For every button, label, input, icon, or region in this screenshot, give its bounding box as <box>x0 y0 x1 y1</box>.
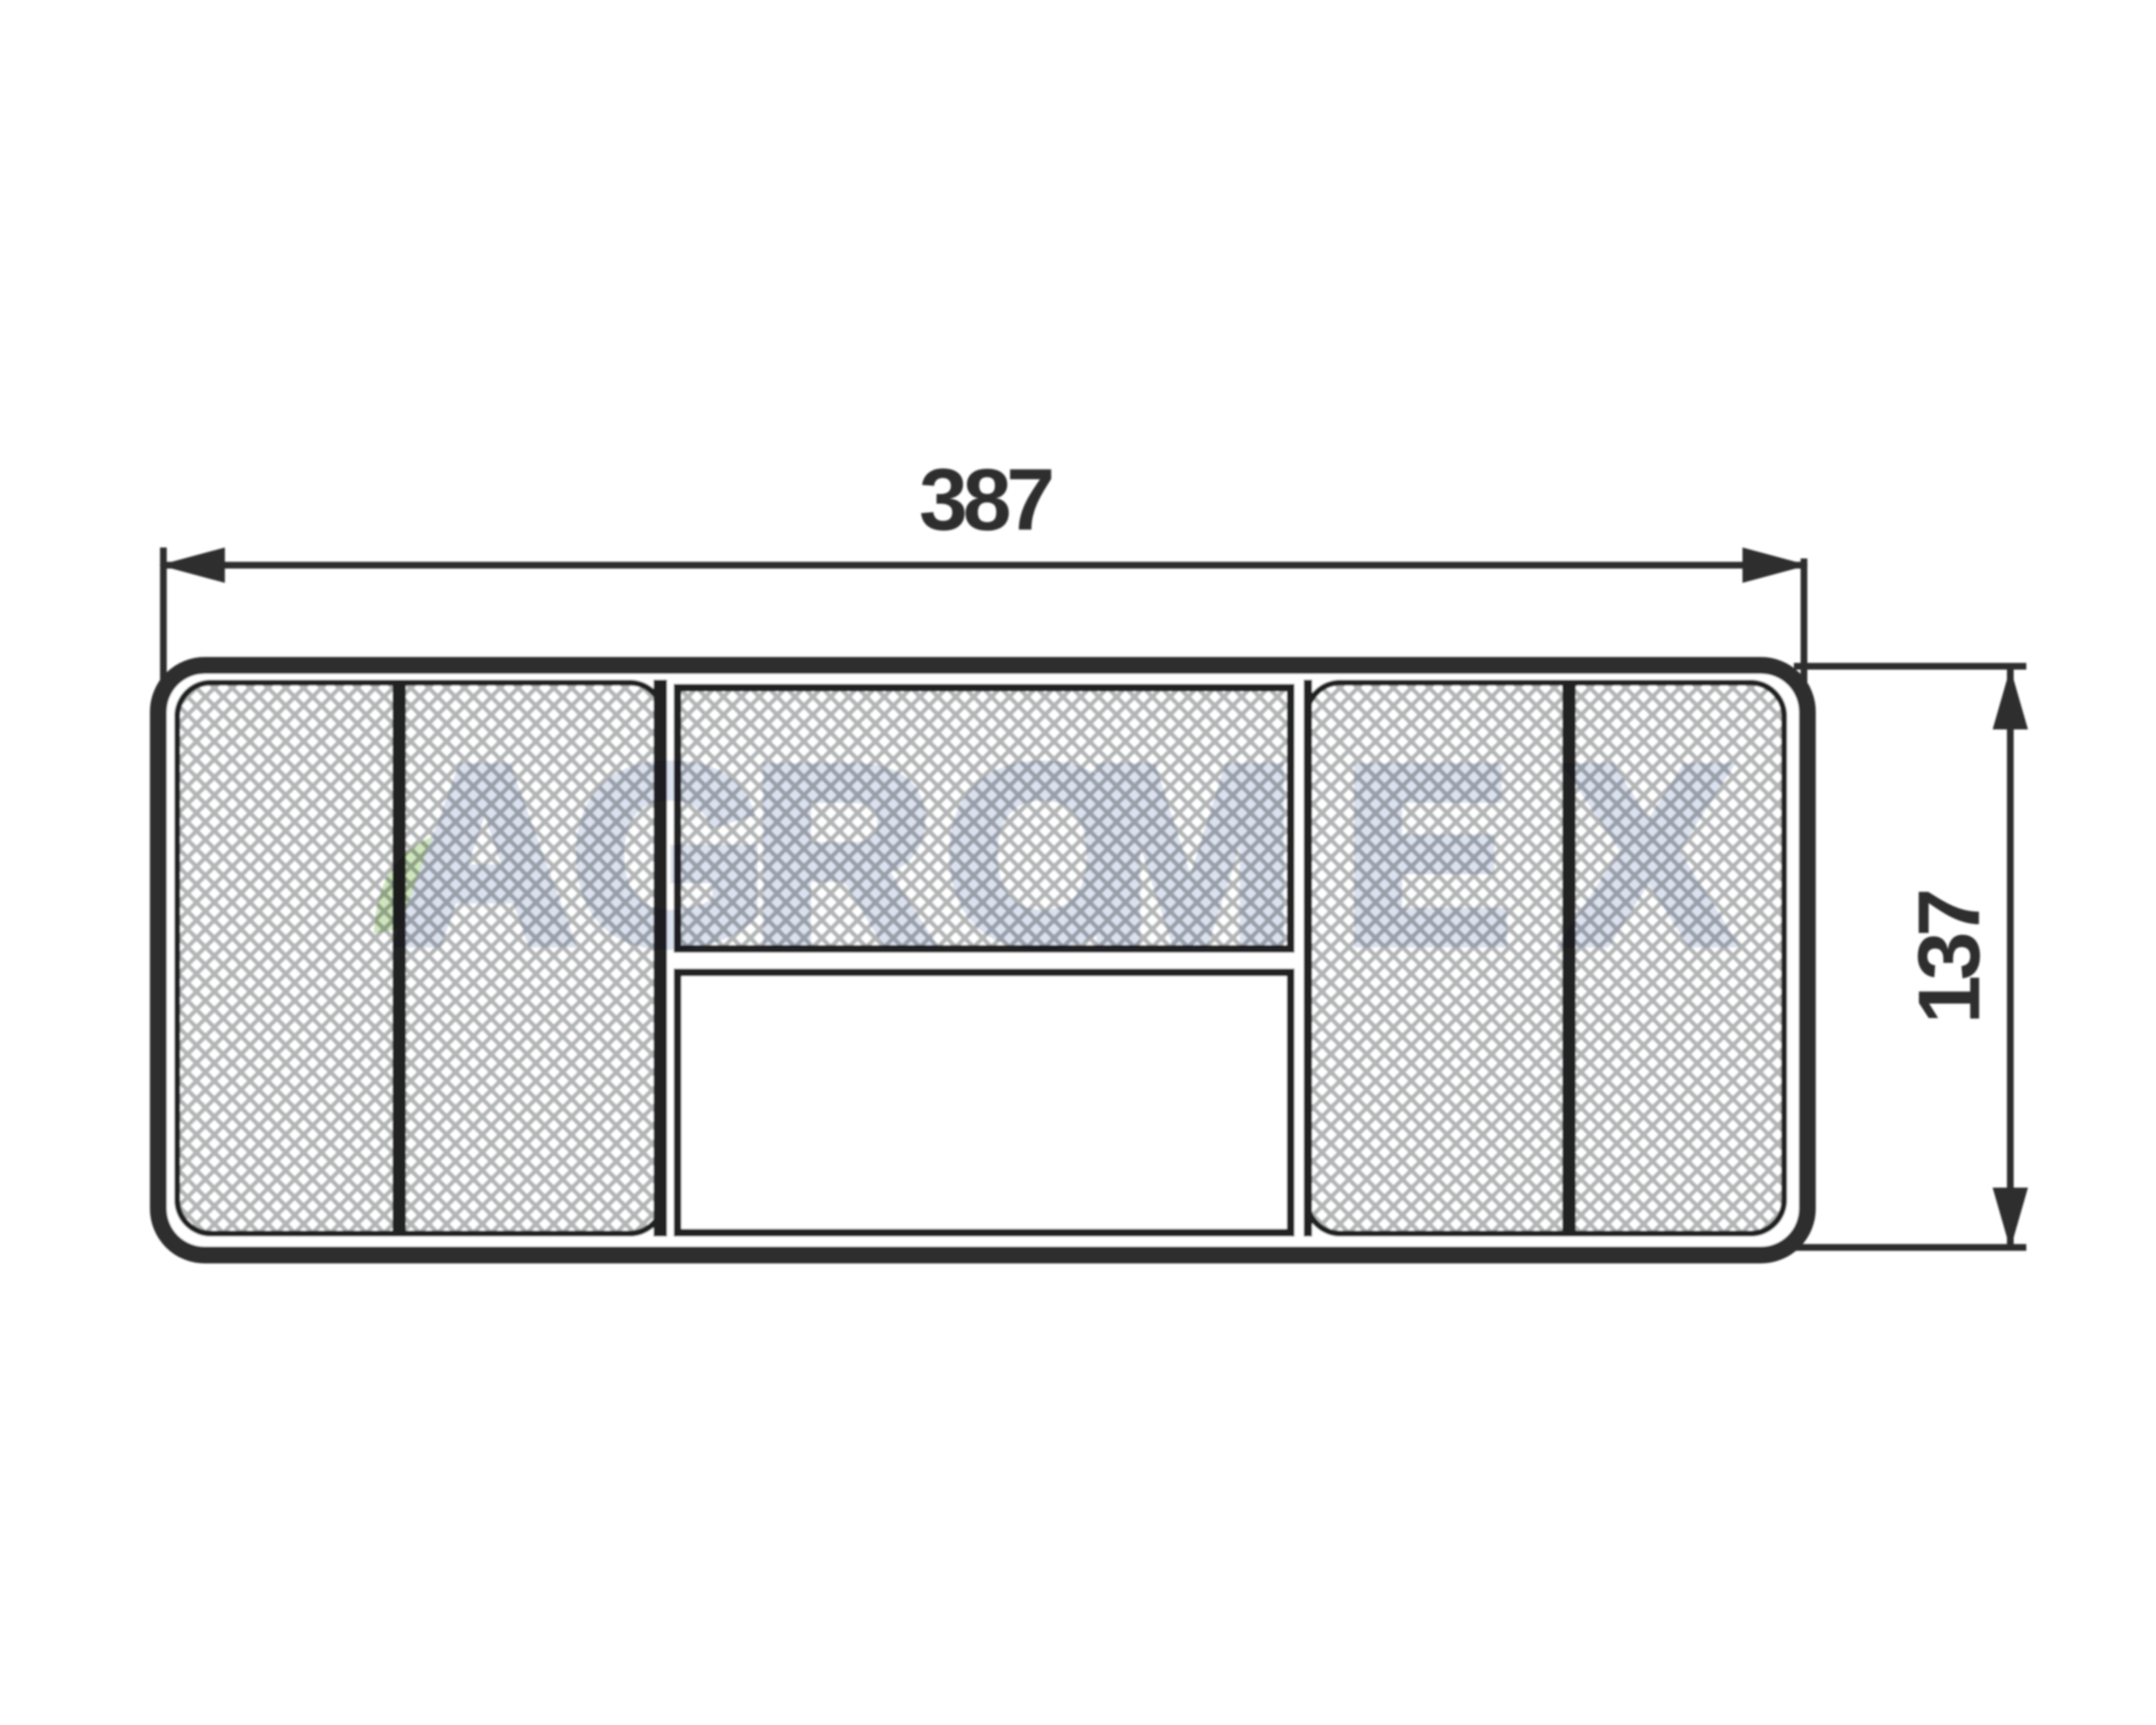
svg-text:137: 137 <box>1901 891 1999 1024</box>
svg-text:387: 387 <box>919 451 1052 549</box>
